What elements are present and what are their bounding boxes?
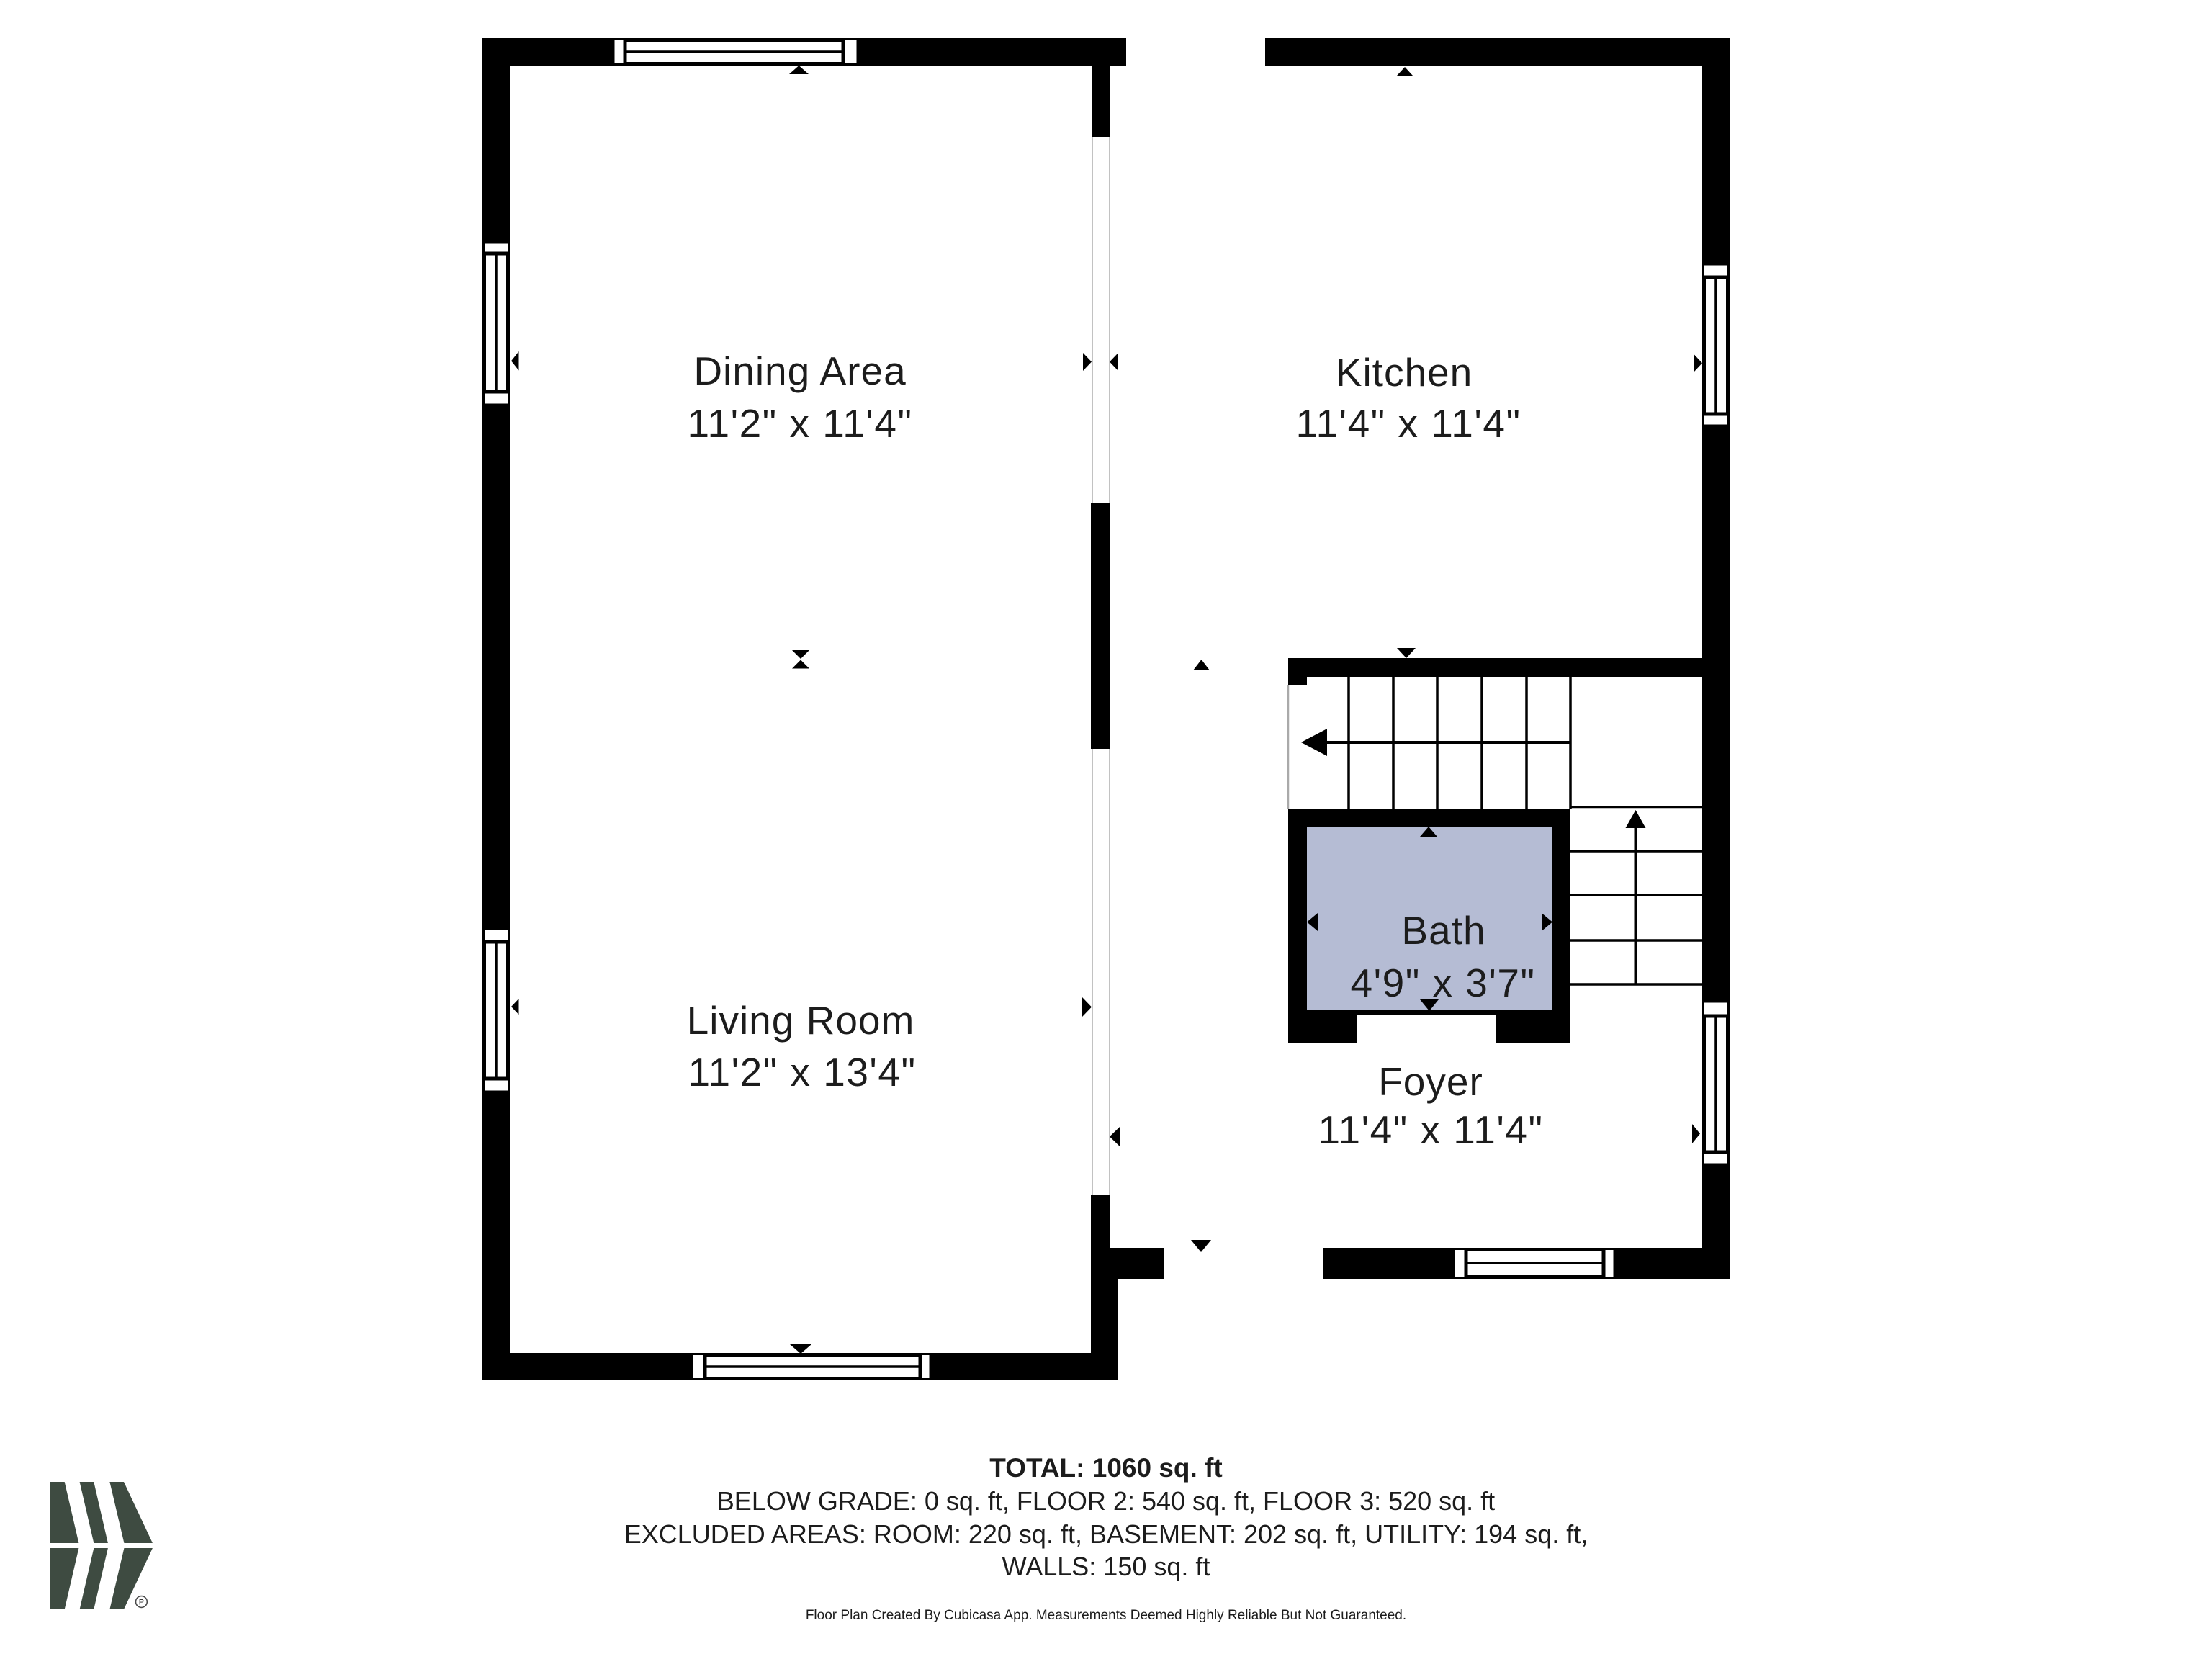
- svg-text:Dining Area: Dining Area: [693, 349, 906, 393]
- svg-text:TOTAL: 1060 sq. ft: TOTAL: 1060 sq. ft: [989, 1453, 1222, 1483]
- svg-text:11'4" x 11'4": 11'4" x 11'4": [1318, 1107, 1544, 1152]
- svg-text:Living Room: Living Room: [687, 998, 915, 1043]
- svg-text:11'2" x 11'4": 11'2" x 11'4": [688, 401, 913, 446]
- svg-text:Kitchen: Kitchen: [1336, 350, 1473, 395]
- svg-text:Bath: Bath: [1401, 908, 1485, 953]
- svg-text:P: P: [139, 1599, 144, 1607]
- svg-text:Floor Plan Created By Cubicasa: Floor Plan Created By Cubicasa App. Meas…: [806, 1608, 1406, 1623]
- svg-text:11'4" x 11'4": 11'4" x 11'4": [1296, 401, 1521, 446]
- svg-text:WALLS: 150 sq. ft: WALLS: 150 sq. ft: [1002, 1552, 1210, 1581]
- svg-text:EXCLUDED AREAS: ROOM: 220 sq.: EXCLUDED AREAS: ROOM: 220 sq. ft, BASEME…: [624, 1519, 1588, 1549]
- svg-text:11'2" x 13'4": 11'2" x 13'4": [688, 1050, 916, 1094]
- svg-text:4'9" x 3'7": 4'9" x 3'7": [1351, 961, 1536, 1005]
- svg-text:BELOW GRADE: 0 sq. ft, FLOOR 2: BELOW GRADE: 0 sq. ft, FLOOR 2: 540 sq. …: [717, 1486, 1495, 1516]
- svg-text:Foyer: Foyer: [1378, 1059, 1483, 1104]
